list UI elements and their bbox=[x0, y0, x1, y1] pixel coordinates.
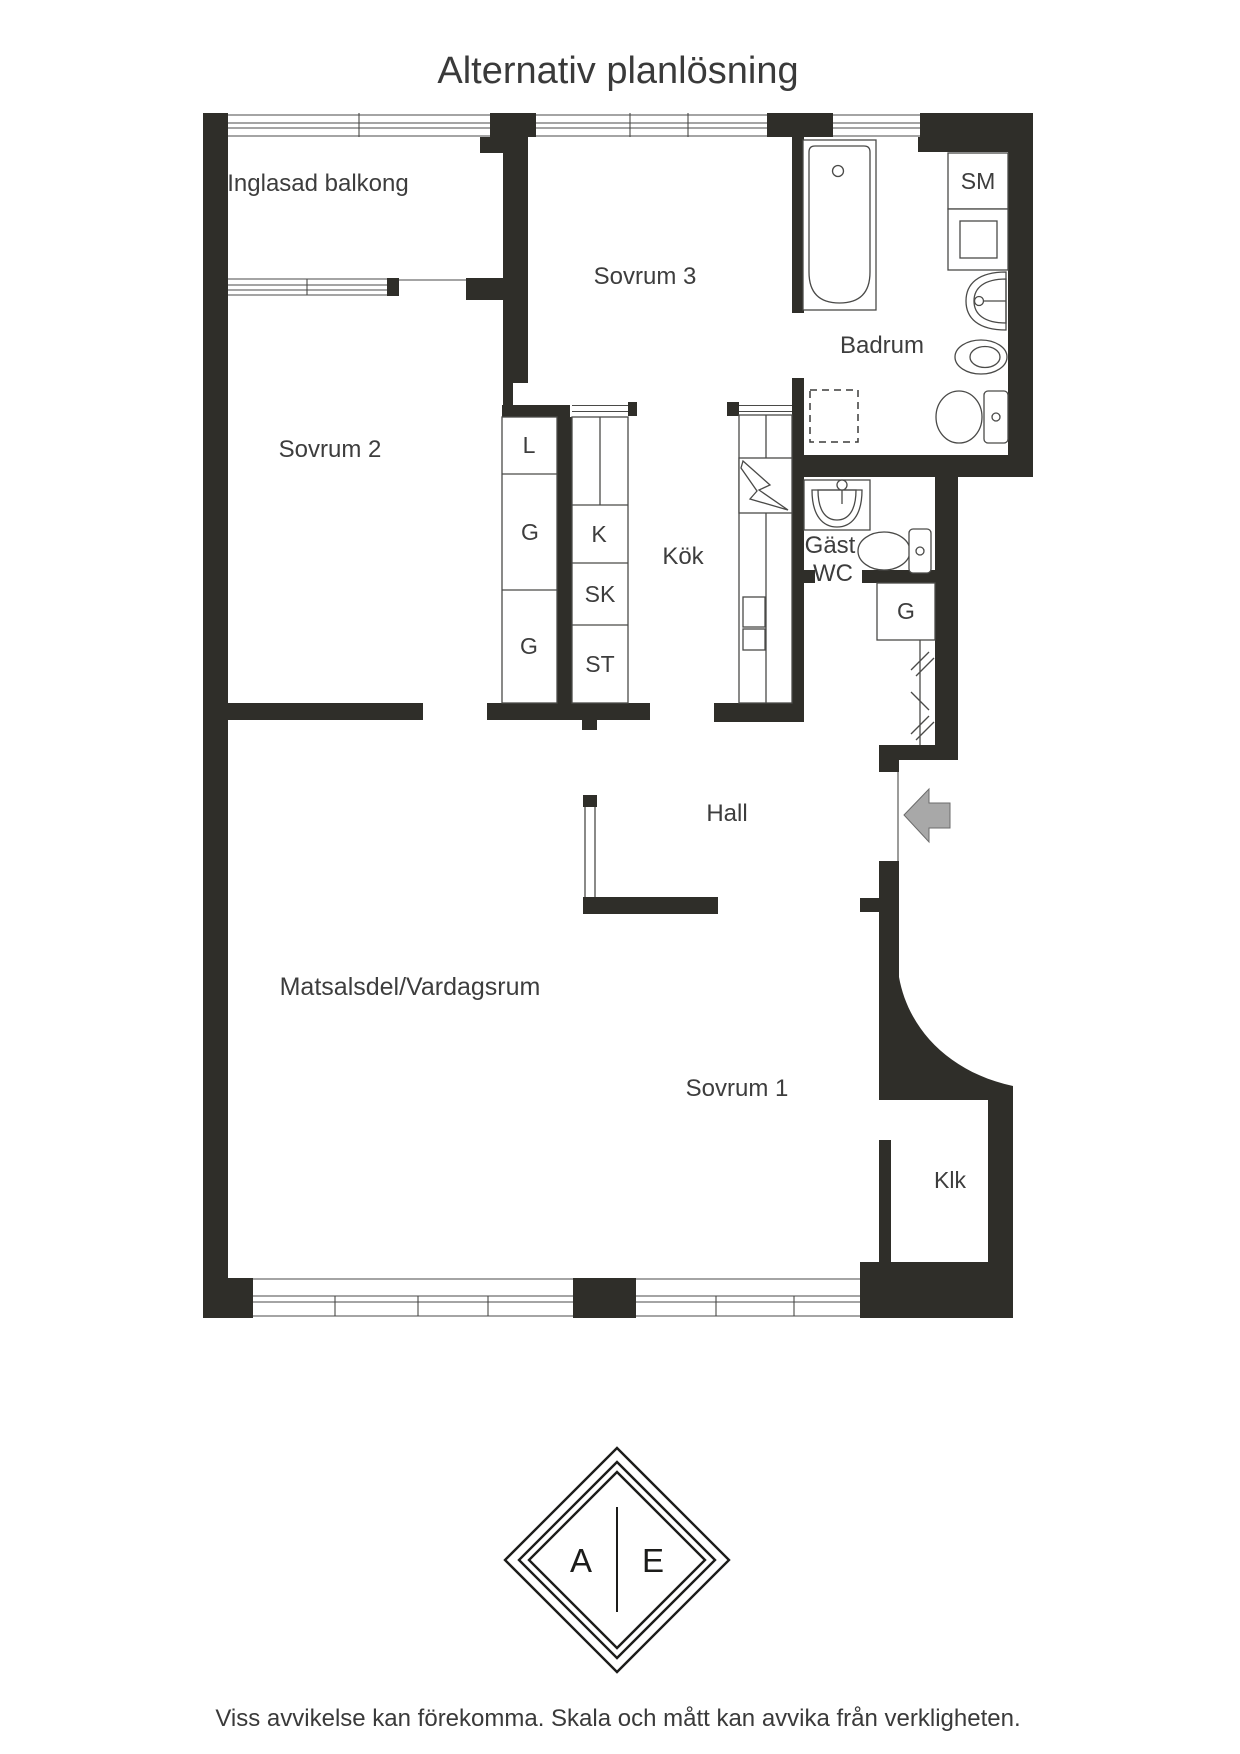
toilet-icon bbox=[936, 391, 1008, 443]
bidet-icon bbox=[955, 340, 1007, 374]
entry bbox=[898, 772, 950, 861]
room-label-hall: Hall bbox=[706, 800, 747, 827]
window-icon bbox=[228, 113, 490, 137]
room-label-living: Matsalsdel/Vardagsrum bbox=[280, 973, 541, 1001]
sliding-door-icon bbox=[911, 640, 934, 745]
hall-partition bbox=[585, 807, 595, 897]
page-title: Alternativ planlösning bbox=[437, 50, 798, 92]
walls bbox=[203, 113, 1033, 1318]
disclaimer-text: Viss avvikelse kan förekomma. Skala och … bbox=[215, 1705, 1020, 1732]
room-label-bedroom3: Sovrum 3 bbox=[594, 263, 697, 290]
room-label-guest-wc-1: Gäst bbox=[805, 532, 856, 559]
cabinet-label-sk: SK bbox=[585, 581, 616, 607]
window-icon bbox=[833, 113, 920, 137]
cabinet-label-sm: SM bbox=[961, 168, 996, 194]
cabinet-label-linen: L bbox=[523, 432, 536, 458]
stove-icon bbox=[739, 458, 792, 513]
floor-plan-page: Alternativ planlösning bbox=[0, 0, 1240, 1754]
window-icon bbox=[536, 113, 767, 137]
room-label-guest-wc-2: WC bbox=[813, 560, 853, 587]
room-label-balcony: Inglasad balkong bbox=[227, 170, 408, 197]
window-icon bbox=[636, 1278, 860, 1318]
room-label-klk: Klk bbox=[934, 1167, 966, 1193]
shower-icon bbox=[810, 390, 858, 442]
cabinet-label-g-lower: G bbox=[520, 633, 538, 659]
room-label-bedroom1: Sovrum 1 bbox=[686, 1075, 789, 1102]
kitchen-counter bbox=[739, 406, 792, 704]
room-label-kitchen: Kök bbox=[662, 543, 704, 570]
logo-letter-a: A bbox=[570, 1542, 592, 1579]
logo-letter-e: E bbox=[642, 1542, 664, 1579]
balcony-partition-window bbox=[228, 279, 466, 295]
bathroom-sink-icon bbox=[966, 272, 1006, 330]
agency-logo: A E bbox=[505, 1448, 729, 1672]
guest-toilet-icon bbox=[858, 529, 931, 573]
bathtub-icon bbox=[803, 140, 876, 310]
room-label-bathroom: Badrum bbox=[840, 332, 924, 359]
curved-wall bbox=[899, 977, 1013, 1100]
cabinet-label-g-upper: G bbox=[521, 519, 539, 545]
window-icon bbox=[253, 1278, 573, 1318]
washing-machine-icon bbox=[948, 209, 1008, 270]
cabinet-label-g-hall: G bbox=[897, 598, 915, 624]
entry-arrow-icon bbox=[904, 789, 950, 842]
guest-sink-icon bbox=[804, 480, 870, 530]
cabinet-label-k: K bbox=[591, 521, 607, 547]
cabinet-label-st: ST bbox=[585, 651, 614, 677]
room-label-bedroom2: Sovrum 2 bbox=[279, 436, 382, 463]
